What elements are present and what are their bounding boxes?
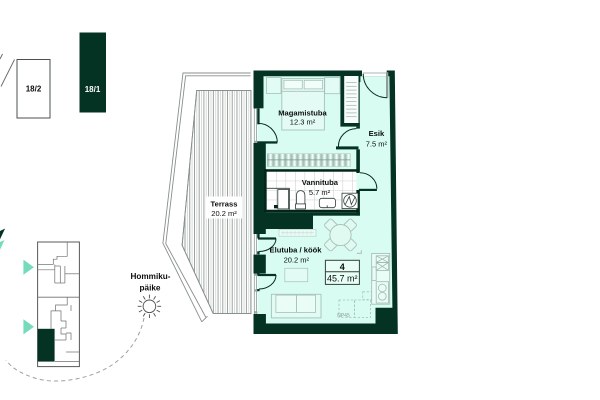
svg-text:Hommiku-: Hommiku- (130, 272, 170, 281)
svg-text:7.5 m²: 7.5 m² (366, 139, 388, 148)
svg-text:Elutuba / köök: Elutuba / köök (270, 246, 323, 255)
svg-text:18/1: 18/1 (85, 85, 101, 94)
svg-text:12.3 m²: 12.3 m² (290, 118, 316, 127)
svg-text:45.7 m²: 45.7 m² (327, 274, 358, 284)
svg-text:18/2: 18/2 (26, 85, 42, 94)
svg-text:4: 4 (340, 262, 345, 272)
svg-text:päike: päike (140, 283, 161, 292)
svg-text:Vannituba: Vannituba (302, 178, 339, 187)
svg-text:Esik: Esik (369, 129, 385, 138)
svg-text:20.2 m²: 20.2 m² (284, 255, 310, 264)
svg-text:5.7 m²: 5.7 m² (309, 188, 331, 197)
svg-text:20.2 m²: 20.2 m² (211, 209, 237, 218)
svg-text:NP45: NP45 (337, 313, 350, 319)
svg-text:Terrass: Terrass (211, 200, 238, 209)
svg-text:Magamistuba: Magamistuba (278, 108, 327, 117)
